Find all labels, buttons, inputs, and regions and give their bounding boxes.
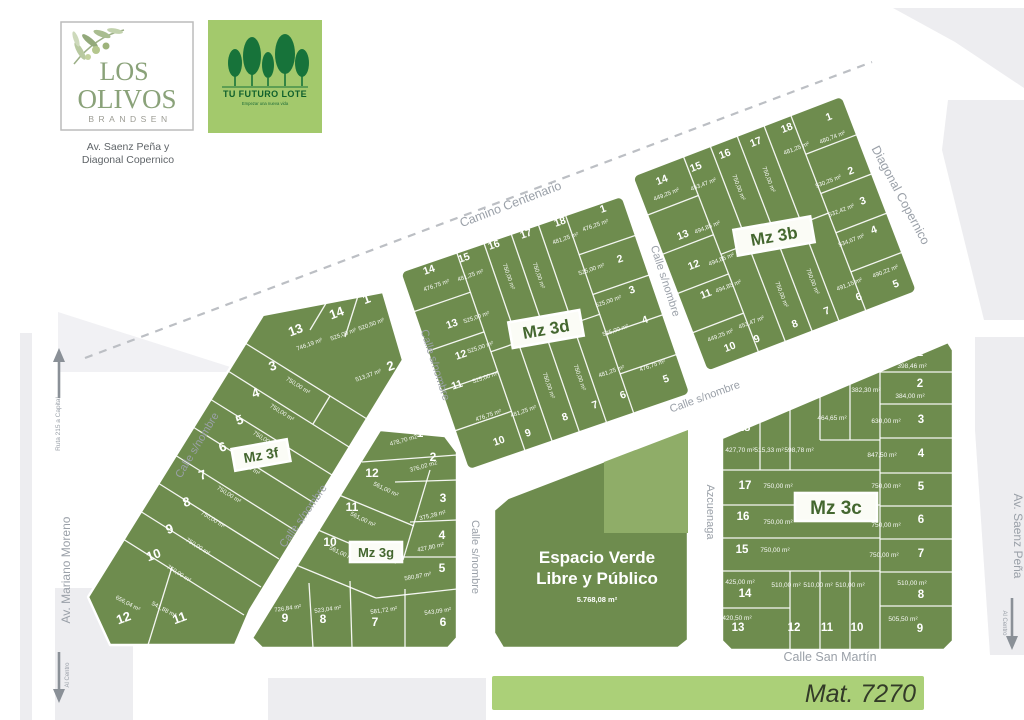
lot-mz3c-8-area: 510,00 m² — [897, 580, 927, 587]
map-svg: 1476,25 m²2525,00 m²3525,00 m²4525,00 m²… — [0, 0, 1024, 720]
street-label-ruta-215: Ruta 215 a Capital — [55, 397, 62, 451]
lot-mz3c-2-number: 2 — [917, 378, 923, 390]
lot-mz3c-10-number: 10 — [851, 622, 864, 634]
lot-mz3c-7-number: 7 — [918, 548, 924, 560]
lot-mz3c-1-number: 1 — [917, 347, 924, 359]
lot-mz3c-16-number: 16 — [737, 511, 750, 523]
matricula-text: Mat. 7270 — [805, 680, 916, 708]
lot-mz3g-8-number: 8 — [320, 612, 327, 626]
lot-mz3g-7-number: 7 — [372, 615, 379, 629]
matricula-banner: Mat. 7270 — [492, 676, 924, 710]
lot-mz3c-17-area: 750,00 m² — [763, 483, 793, 490]
logo-address-line2: Diagonal Copernico — [82, 154, 174, 166]
street-label-calle-san-martin: Calle San Martín — [783, 650, 876, 664]
street-label-al-centro-right: Al Centro — [1001, 610, 1007, 636]
lot-mz3c-14-area: 425,00 m² — [725, 579, 755, 586]
lot-mz3c-11-number: 11 — [821, 622, 834, 634]
lot-mz3c-21-number: 21 — [829, 379, 842, 391]
lot-mz3c-6-area: 750,00 m² — [871, 522, 901, 529]
lot-mz3c-15-area: 750,00 m² — [760, 547, 790, 554]
lot-mz3c-12-area: 510,00 m² — [771, 582, 801, 589]
block-mz3c-label-box: Mz 3c — [795, 493, 877, 521]
street-label-av-saenz-pena: Av. Saenz Peña — [1011, 494, 1024, 579]
lot-mz3c-18-area: 427,70 m² — [725, 447, 755, 454]
lot-mz3c-20-area: 598,78 m² — [784, 447, 814, 454]
lot-mz3c-16-area: 750,00 m² — [763, 519, 793, 526]
green-space: Espacio Verde Libre y Público 5.768,08 m… — [494, 429, 688, 648]
badge-tagline: Empezar una nueva vida — [242, 101, 289, 106]
lot-mz3g-1-number: 1 — [417, 426, 424, 440]
block-mz3b: 1480,74 m²2530,25 m²3532,42 m²4534,67 m²… — [632, 95, 917, 372]
lot-mz3c-4-area: 847,50 m² — [867, 452, 897, 459]
block-mz3d: 1476,25 m²2525,00 m²3525,00 m²4525,00 m²… — [400, 195, 691, 470]
badge-tu-futuro-lote: TU FUTURO LOTE Empezar una nueva vida — [208, 20, 322, 133]
lot-mz3g-9-number: 9 — [282, 611, 289, 625]
lot-mz3c-5-number: 5 — [918, 481, 925, 493]
lot-mz3c-3-area: 630,00 m² — [871, 418, 901, 425]
lot-mz3c-20-number: 20 — [799, 390, 812, 402]
lot-mz3c-1-area: 398,46 m² — [897, 363, 927, 370]
green-space-title-line1: Espacio Verde — [539, 548, 655, 567]
lot-mz3c-12-number: 12 — [788, 622, 801, 634]
lot-mz3g-3-number: 3 — [440, 491, 447, 505]
lot-mz3c-19-number: 19 — [769, 402, 782, 414]
logo-address-line1: Av. Saenz Peña y — [87, 141, 170, 153]
lot-mz3g-4-number: 4 — [439, 528, 446, 542]
lot-mz3c-3-number: 3 — [918, 414, 924, 426]
lot-mz3c-13-number: 13 — [732, 622, 745, 634]
lot-mz3c-19-area: 515,33 m² — [754, 447, 784, 454]
logo-los-olivos: LOS OLIVOS BRANDSEN Av. Saenz Peña y Dia… — [61, 22, 193, 166]
lot-mz3c-8-number: 8 — [918, 589, 925, 601]
lot-mz3c-4-number: 4 — [918, 448, 925, 460]
lot-mz3c-22-area: 382,30 m² — [851, 387, 881, 394]
green-space-title-line2: Libre y Público — [536, 569, 658, 588]
lot-mz3c-21-area: 464,65 m² — [817, 415, 847, 422]
lot-mz3g-12-number: 12 — [365, 466, 379, 480]
badge-title: TU FUTURO LOTE — [223, 89, 307, 99]
street-label-av-mariano-moreno: Av. Mariano Moreno — [59, 516, 73, 623]
lot-mz3c-15-number: 15 — [736, 544, 749, 556]
lot-mz3g-5-number: 5 — [439, 561, 446, 575]
lot-mz3c-10-area: 510,00 m² — [835, 582, 865, 589]
lot-mz3g-6-number: 6 — [440, 615, 447, 629]
lot-mz3c-13-area: 420,50 m² — [722, 615, 752, 622]
lot-mz3c-18-number: 18 — [738, 422, 751, 434]
lot-mz3c-22-number: 22 — [866, 363, 879, 375]
green-space-area: 5.768,08 m² — [577, 595, 618, 604]
lot-mz3c-11-area: 510,00 m² — [803, 582, 833, 589]
lot-mz3c-17-number: 17 — [739, 480, 752, 492]
lot-map-flyer: 1476,25 m²2525,00 m²3525,00 m²4525,00 m²… — [0, 0, 1024, 720]
lot-mz3c-6-number: 6 — [918, 514, 924, 526]
block-mz3g-label-text: Mz 3g — [358, 545, 394, 560]
street-label-calle-sn-3g-east: Calle s/nombre — [469, 520, 481, 594]
street-label-azcuenaga: Azcuenaga — [704, 484, 716, 540]
lot-mz3c-9-area: 505,50 m² — [888, 616, 918, 623]
lot-mz3c-5-area: 750,00 m² — [871, 483, 901, 490]
lot-mz3c-7-area: 750,00 m² — [869, 552, 899, 559]
logo-line2: OLIVOS — [78, 84, 177, 114]
street-label-al-centro-left: Al Centro — [65, 662, 71, 688]
block-mz3c: 1398,46 m²2384,00 m²3630,00 m²4847,50 m²… — [722, 342, 953, 650]
block-mz3c-label-text: Mz 3c — [810, 498, 862, 519]
lot-mz3c-2-area: 384,00 m² — [895, 393, 925, 400]
block-mz3g-label-box: Mz 3g — [350, 542, 402, 562]
logo-line3: BRANDSEN — [88, 114, 171, 124]
lot-mz3c-14-number: 14 — [739, 588, 752, 600]
logo-line1: LOS — [99, 57, 148, 86]
lot-mz3c-9-number: 9 — [917, 623, 923, 635]
